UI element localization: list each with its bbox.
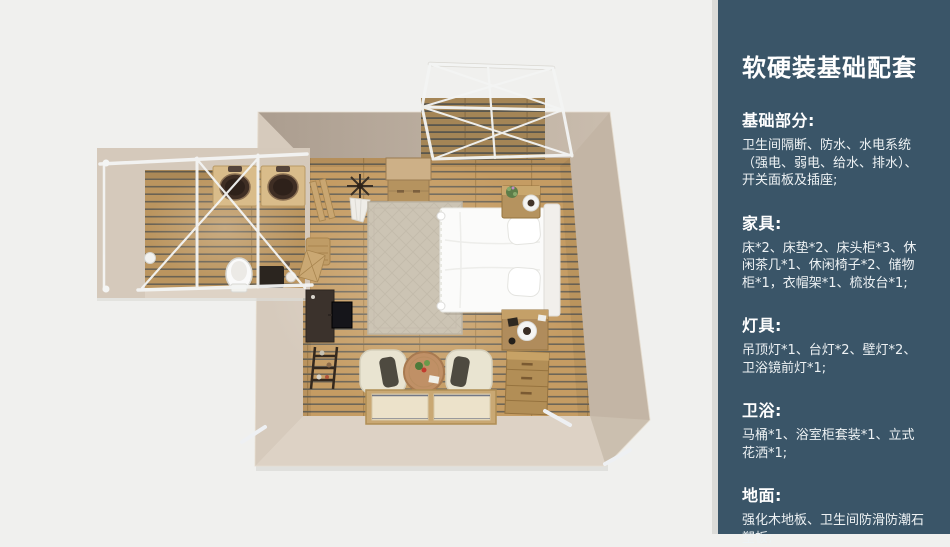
section-flooring: 地面: 强化木地板、卫生间防滑防潮石塑板; — [742, 482, 936, 547]
section-basics: 基础部分: 卫生间隔断、防水、水电系统（强电、弱电、给水、排水）、开关面板及插座… — [742, 107, 936, 190]
page-title: 软硬装基础配套 — [742, 48, 936, 83]
coffee-table — [404, 352, 444, 392]
wardrobe — [386, 158, 431, 202]
section-title: 灯具: — [742, 312, 936, 336]
section-title: 基础部分: — [742, 107, 936, 131]
section-furniture: 家具: 床*2、床垫*2、床头柜*3、休闲茶几*1、休闲椅子*2、储物柜*1，衣… — [742, 210, 936, 293]
section-lighting: 灯具: 吊顶灯*1、台灯*2、壁灯*2、卫浴镜前灯*1; — [742, 312, 936, 377]
section-bathroom: 卫浴: 马桶*1、浴室柜套装*1、立式花洒*1; — [742, 397, 936, 462]
makeup-table — [502, 310, 548, 350]
section-body: 马桶*1、浴室柜套装*1、立式花洒*1; — [742, 427, 924, 462]
tatami-mats — [366, 390, 496, 424]
section-body: 吊顶灯*1、台灯*2、壁灯*2、卫浴镜前灯*1; — [742, 342, 924, 377]
headboard — [544, 204, 560, 316]
armchair-left — [360, 350, 406, 394]
sidebar-panel: 软硬装基础配套 基础部分: 卫生间隔断、防水、水电系统（强电、弱电、给水、排水）… — [718, 0, 950, 534]
nightstand-top — [502, 186, 540, 218]
dresser — [505, 351, 549, 414]
section-body: 床*2、床垫*2、床头柜*3、休闲茶几*1、休闲椅子*2、储物柜*1，衣帽架*1… — [742, 240, 924, 293]
section-title: 地面: — [742, 482, 936, 506]
waste-bin — [145, 253, 156, 264]
tv-screen — [332, 302, 352, 328]
section-body: 卫生间隔断、防水、水电系统（强电、弱电、给水、排水）、开关面板及插座; — [742, 137, 924, 190]
section-title: 家具: — [742, 210, 936, 234]
section-body: 强化木地板、卫生间防滑防潮石塑板; — [742, 512, 924, 547]
section-title: 卫浴: — [742, 397, 936, 421]
floorplan-render — [0, 0, 714, 534]
slide-canvas: 软硬装基础配套 基础部分: 卫生间隔断、防水、水电系统（强电、弱电、给水、排水）… — [0, 0, 950, 534]
pillow — [507, 267, 541, 297]
armchair-right — [446, 350, 492, 394]
bed — [437, 204, 560, 316]
bathroom — [97, 148, 312, 301]
pillow — [507, 215, 541, 246]
